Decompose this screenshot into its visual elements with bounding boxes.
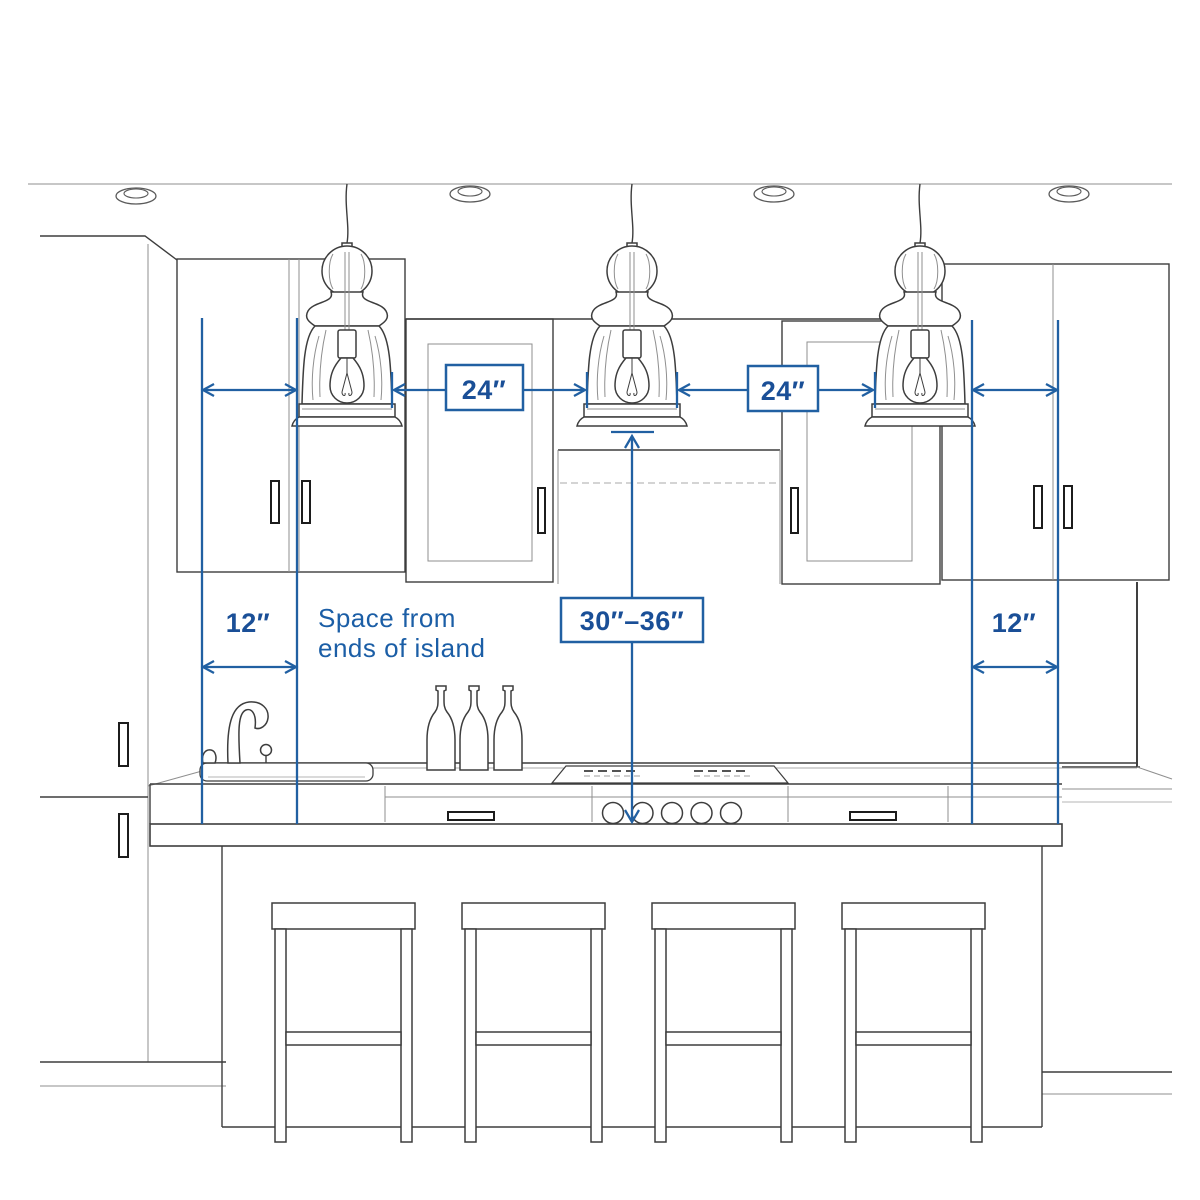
island — [222, 846, 1042, 1127]
tall-cabinet-left — [40, 236, 226, 1086]
recessed-light-icon — [1049, 186, 1089, 202]
ceiling — [28, 184, 1172, 204]
dimension-label-12-right: 12″ — [992, 608, 1036, 638]
bottle — [460, 686, 488, 770]
cabinet-handle — [271, 481, 279, 523]
sink — [200, 763, 373, 781]
dimension-label-30-36: 30″–36″ — [580, 606, 684, 636]
cabinet-handle — [1064, 486, 1072, 528]
note-line2: ends of island — [318, 633, 485, 663]
drawer-handle — [448, 812, 494, 820]
cabinet-handle — [1034, 486, 1042, 528]
diagram-drawing: 24″ 24″ 30″–36″ 12″ 12″ Space from ends … — [0, 0, 1200, 1200]
pendant-light-1 — [292, 184, 402, 426]
bar-stool — [272, 903, 415, 1142]
bottle — [494, 686, 522, 770]
cabinet-handle — [538, 488, 545, 533]
cabinet-handle — [119, 723, 128, 766]
bottles — [427, 686, 522, 770]
cabinet-handle — [791, 488, 798, 533]
cabinet-handle — [302, 481, 310, 523]
bottle — [427, 686, 455, 770]
recessed-light-icon — [116, 188, 156, 204]
pendant-light-3 — [865, 184, 975, 426]
pendant-light-2 — [577, 184, 687, 426]
recessed-light-icon — [754, 186, 794, 202]
counter-slab-edge — [150, 824, 1062, 846]
faucet — [202, 702, 271, 763]
bar-stool — [462, 903, 605, 1142]
dimension-label-12-left: 12″ — [226, 608, 270, 638]
kitchen-pendant-spacing-diagram: 24″ 24″ 30″–36″ 12″ 12″ Space from ends … — [0, 0, 1200, 1200]
cabinet-handle — [119, 814, 128, 857]
note-line1: Space from — [318, 603, 456, 633]
recessed-light-icon — [450, 186, 490, 202]
bar-stools — [272, 903, 985, 1142]
cooktop — [552, 766, 788, 783]
range-hood — [558, 450, 780, 584]
cooktop-knobs — [603, 803, 742, 824]
bar-stool — [842, 903, 985, 1142]
drawer-handle — [850, 812, 896, 820]
dimension-label-24-left: 24″ — [462, 375, 506, 405]
dimension-label-24-right: 24″ — [761, 376, 805, 406]
bar-stool — [652, 903, 795, 1142]
